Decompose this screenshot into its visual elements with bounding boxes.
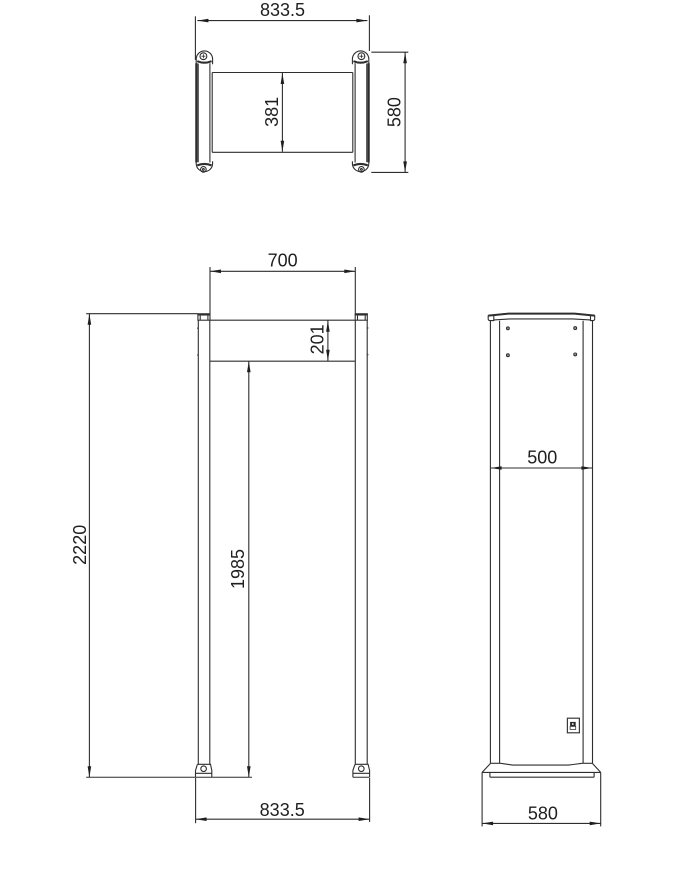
svg-text:833.5: 833.5: [260, 0, 305, 20]
svg-text:1985: 1985: [228, 549, 248, 589]
svg-text:2220: 2220: [70, 525, 90, 565]
svg-text:381: 381: [262, 97, 282, 127]
svg-text:201: 201: [307, 324, 327, 354]
svg-text:500: 500: [527, 447, 557, 467]
svg-text:580: 580: [528, 803, 558, 823]
svg-text:833.5: 833.5: [260, 800, 305, 820]
svg-text:700: 700: [268, 251, 298, 271]
svg-text:580: 580: [385, 97, 405, 127]
